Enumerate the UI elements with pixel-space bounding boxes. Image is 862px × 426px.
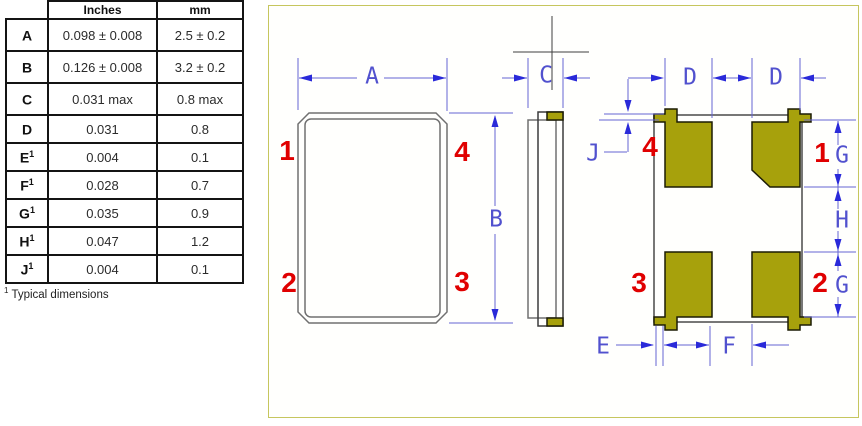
table-header-row: Inches mm xyxy=(6,1,243,19)
bottom-view xyxy=(599,58,856,366)
top-view xyxy=(298,58,513,323)
corner-cell xyxy=(6,1,48,19)
dim-label-f: F xyxy=(722,336,736,359)
dim-label-h: H xyxy=(835,210,849,233)
table-row: H1 0.047 1.2 xyxy=(6,227,243,255)
table-row: C 0.031 max 0.8 max xyxy=(6,83,243,115)
table-row: D 0.031 0.8 xyxy=(6,115,243,143)
page: Inches mm A 0.098 ± 0.008 2.5 ± 0.2 B 0.… xyxy=(0,0,862,426)
table-row: E1 0.004 0.1 xyxy=(6,143,243,171)
mm-value: 1.2 xyxy=(157,227,243,255)
inches-value: 0.004 xyxy=(48,143,157,171)
pin-label-bottomview-2: 2 xyxy=(812,269,828,297)
inches-value: 0.028 xyxy=(48,171,157,199)
dim-label-d-right: D xyxy=(769,67,783,90)
table-row: G1 0.035 0.9 xyxy=(6,199,243,227)
table-row: J1 0.004 0.1 xyxy=(6,255,243,283)
dim-label-e: E xyxy=(596,336,610,359)
mm-value: 0.8 max xyxy=(157,83,243,115)
dim-label-g-bottom: G xyxy=(835,275,849,298)
mm-value: 0.7 xyxy=(157,171,243,199)
mm-value: 3.2 ± 0.2 xyxy=(157,51,243,83)
table-row: F1 0.028 0.7 xyxy=(6,171,243,199)
pin-label-topview-4: 4 xyxy=(454,138,470,166)
drawing-panel: A B C D D J G H G E F 1 4 2 3 4 1 3 2 xyxy=(268,5,859,418)
pin-label-bottomview-4: 4 xyxy=(642,133,658,161)
mm-value: 0.1 xyxy=(157,255,243,283)
col-header-mm: mm xyxy=(157,1,243,19)
mm-value: 0.8 xyxy=(157,115,243,143)
table-footnote: 1 Typical dimensions xyxy=(4,286,109,301)
package-drawing xyxy=(269,6,856,415)
dim-label-d-left: D xyxy=(683,67,697,90)
inches-value: 0.126 ± 0.008 xyxy=(48,51,157,83)
mm-value: 2.5 ± 0.2 xyxy=(157,19,243,51)
table-row: A 0.098 ± 0.008 2.5 ± 0.2 xyxy=(6,19,243,51)
dim-label-g-top: G xyxy=(835,145,849,168)
pin-label-topview-1: 1 xyxy=(279,137,295,165)
inches-value: 0.098 ± 0.008 xyxy=(48,19,157,51)
pin-label-topview-2: 2 xyxy=(281,269,297,297)
mm-value: 0.9 xyxy=(157,199,243,227)
dim-label-b: B xyxy=(489,209,503,232)
pad-4 xyxy=(654,109,712,187)
inches-value: 0.031 max xyxy=(48,83,157,115)
table-row: B 0.126 ± 0.008 3.2 ± 0.2 xyxy=(6,51,243,83)
inches-value: 0.004 xyxy=(48,255,157,283)
pin-label-bottomview-1: 1 xyxy=(814,139,830,167)
inches-value: 0.047 xyxy=(48,227,157,255)
dim-label-c: C xyxy=(539,65,553,88)
inches-value: 0.031 xyxy=(48,115,157,143)
dim-label-j: J xyxy=(586,143,600,166)
dim-label-a: A xyxy=(365,66,379,89)
col-header-inches: Inches xyxy=(48,1,157,19)
pad-3 xyxy=(654,252,712,330)
dimensions-table: Inches mm A 0.098 ± 0.008 2.5 ± 0.2 B 0.… xyxy=(5,0,244,284)
mm-value: 0.1 xyxy=(157,143,243,171)
pin-label-topview-3: 3 xyxy=(454,268,470,296)
pin-label-bottomview-3: 3 xyxy=(631,269,647,297)
inches-value: 0.035 xyxy=(48,199,157,227)
